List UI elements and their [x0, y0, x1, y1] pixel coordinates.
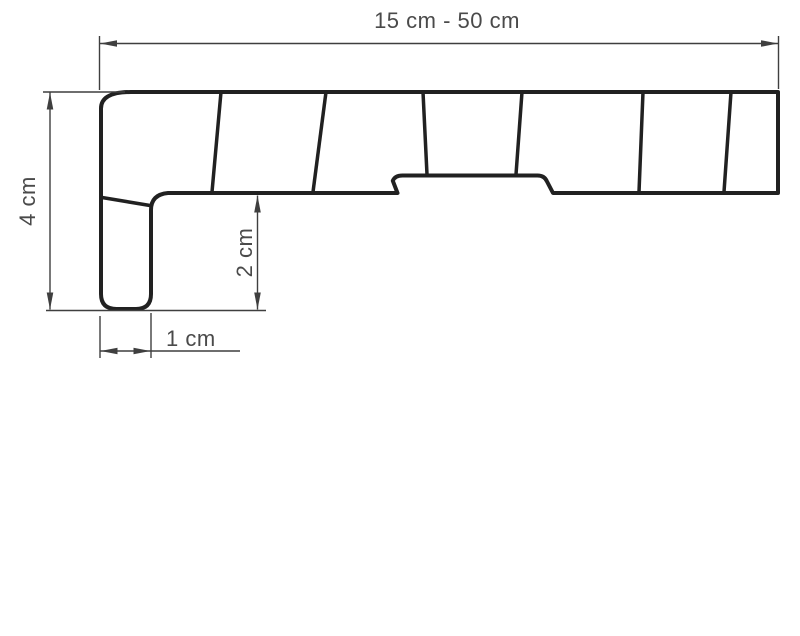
dimension-label-front-edge-width: 1 cm: [166, 326, 216, 351]
diagram-canvas: 15 cm - 50 cm 4 cm 2 cm 1 cm: [0, 0, 800, 636]
chamber-rib-line-1: [212, 92, 221, 192]
arrowhead-down-icon: [254, 293, 261, 310]
dimension-label-width-range: 15 cm - 50 cm: [374, 8, 520, 33]
arrowhead-up-icon: [47, 93, 54, 110]
dimension-total-height: 4 cm: [15, 92, 266, 311]
arrowhead-right-icon: [134, 348, 151, 355]
dimension-label-front-edge-height: 2 cm: [232, 228, 257, 278]
sill-profile-outline: [101, 92, 778, 309]
dimension-label-height: 4 cm: [15, 176, 40, 226]
arrowhead-left-icon: [101, 348, 118, 355]
chamber-rib-line-4: [516, 92, 522, 175]
arrowhead-down-icon: [47, 293, 54, 310]
arrowhead-left-icon: [100, 40, 117, 47]
chamber-rib-line-3: [423, 92, 427, 175]
dimension-front-edge-height: 2 cm: [232, 196, 261, 310]
dimension-front-edge-width: 1 cm: [100, 313, 240, 358]
sill-cross-section-drawing: 15 cm - 50 cm 4 cm 2 cm 1 cm: [0, 0, 800, 636]
chamber-rib-line-5: [639, 92, 643, 192]
chamber-rib-line-2: [313, 92, 326, 192]
arrowhead-right-icon: [761, 40, 778, 47]
arrowhead-up-icon: [254, 196, 261, 213]
dimension-top-width: 15 cm - 50 cm: [100, 8, 779, 90]
chamber-rib-line-6: [724, 92, 731, 192]
nose-inner-wall-line: [102, 198, 150, 206]
